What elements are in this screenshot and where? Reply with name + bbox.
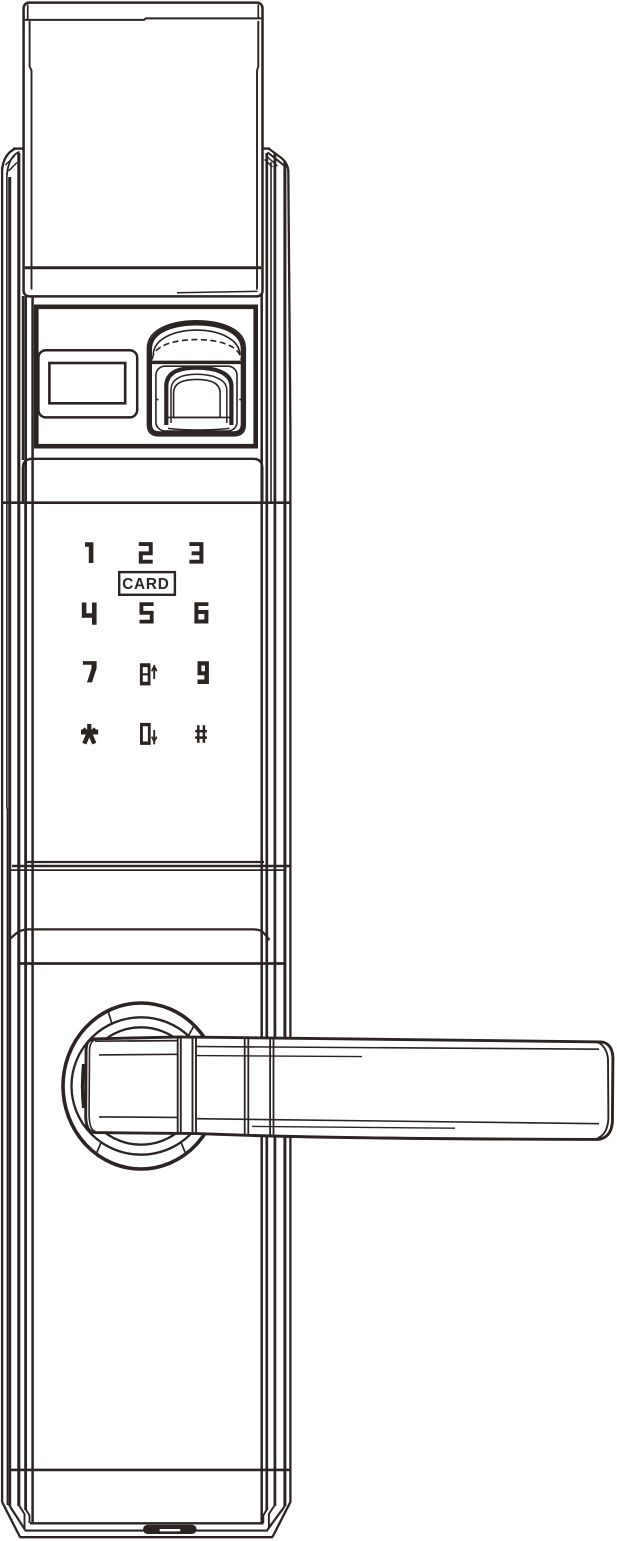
svg-text:CARD: CARD: [122, 576, 169, 593]
